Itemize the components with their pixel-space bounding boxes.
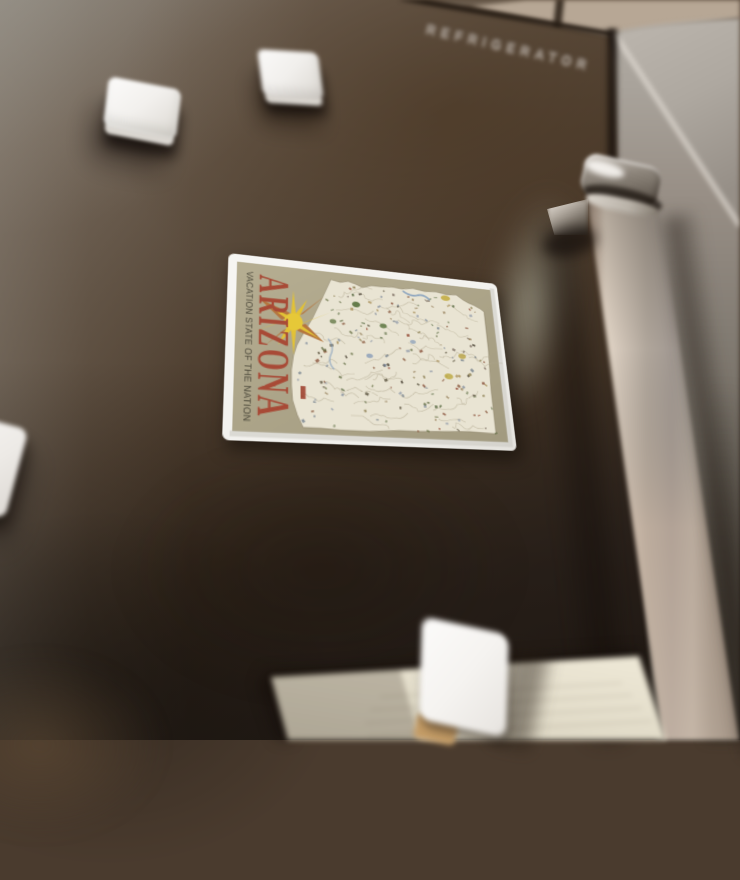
svg-text:ARIZONA: ARIZONA: [246, 273, 297, 420]
